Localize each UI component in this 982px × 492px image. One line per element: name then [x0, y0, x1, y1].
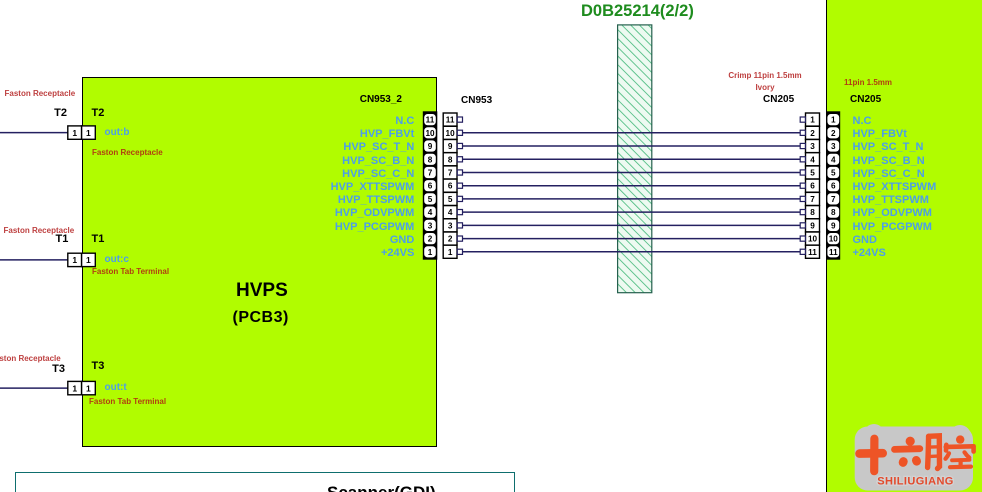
svg-text:1: 1 — [86, 255, 91, 265]
svg-text:7: 7 — [448, 169, 453, 178]
svg-text:8: 8 — [448, 155, 453, 164]
svg-text:9: 9 — [428, 142, 433, 151]
svg-text:6: 6 — [448, 182, 453, 191]
svg-text:9: 9 — [831, 221, 836, 230]
svg-text:2: 2 — [810, 129, 815, 138]
svg-text:2: 2 — [448, 235, 453, 244]
svg-text:1: 1 — [86, 128, 91, 138]
svg-text:1: 1 — [810, 116, 815, 125]
svg-text:9: 9 — [448, 142, 453, 151]
svg-text:8: 8 — [810, 208, 815, 217]
svg-text:4: 4 — [810, 155, 815, 164]
svg-text:3: 3 — [831, 142, 836, 151]
svg-text:5: 5 — [810, 169, 815, 178]
svg-text:4: 4 — [831, 155, 836, 164]
svg-text:11: 11 — [426, 116, 435, 125]
svg-text:5: 5 — [448, 195, 453, 204]
svg-text:7: 7 — [428, 169, 433, 178]
svg-text:5: 5 — [428, 195, 433, 204]
svg-text:7: 7 — [810, 195, 815, 204]
svg-text:5: 5 — [831, 169, 836, 178]
svg-text:7: 7 — [831, 195, 836, 204]
svg-text:3: 3 — [810, 142, 815, 151]
svg-text:1: 1 — [448, 248, 453, 257]
svg-text:1: 1 — [72, 383, 77, 393]
svg-text:10: 10 — [829, 235, 839, 244]
svg-text:8: 8 — [428, 155, 433, 164]
svg-text:SHILIUGIANG: SHILIUGIANG — [877, 476, 954, 488]
svg-text:2: 2 — [428, 235, 433, 244]
svg-text:1: 1 — [72, 255, 77, 265]
svg-text:2: 2 — [831, 129, 836, 138]
svg-text:1: 1 — [86, 383, 91, 393]
svg-text:10: 10 — [425, 129, 435, 138]
svg-text:3: 3 — [428, 221, 433, 230]
svg-text:6: 6 — [810, 182, 815, 191]
svg-text:1: 1 — [428, 248, 433, 257]
svg-text:11: 11 — [808, 248, 817, 257]
svg-text:10: 10 — [808, 235, 818, 244]
svg-text:6: 6 — [831, 182, 836, 191]
svg-text:6: 6 — [428, 182, 433, 191]
svg-text:4: 4 — [448, 208, 453, 217]
svg-text:10: 10 — [446, 129, 456, 138]
svg-text:1: 1 — [831, 116, 836, 125]
svg-text:3: 3 — [448, 221, 453, 230]
svg-text:9: 9 — [810, 221, 815, 230]
svg-text:8: 8 — [831, 208, 836, 217]
svg-text:11: 11 — [829, 248, 838, 257]
svg-text:11: 11 — [446, 116, 455, 125]
svg-text:1: 1 — [72, 128, 77, 138]
svg-text:4: 4 — [428, 208, 433, 217]
